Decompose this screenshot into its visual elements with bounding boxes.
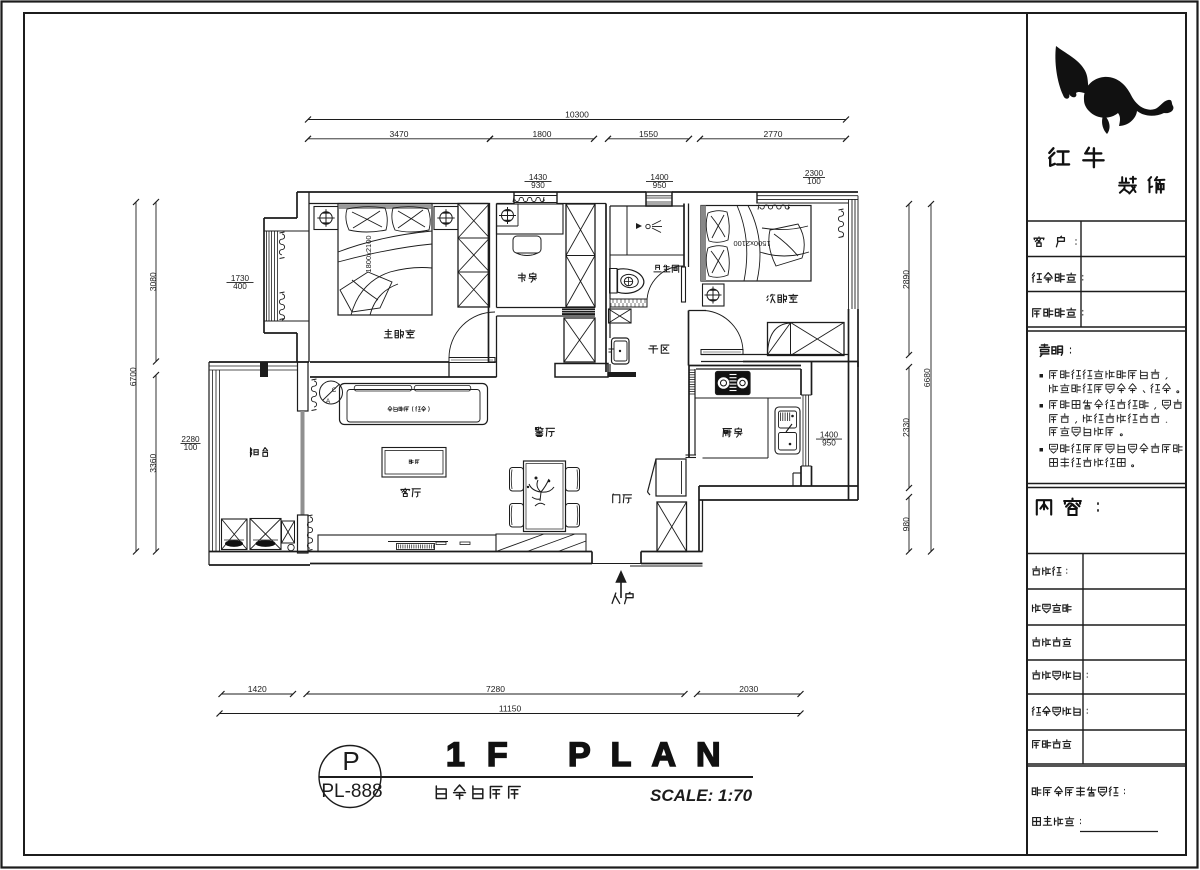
- svg-text:P: P: [342, 746, 359, 776]
- svg-text:950: 950: [653, 181, 667, 190]
- svg-text:C: C: [332, 387, 337, 394]
- svg-text:1800: 1800: [533, 129, 552, 139]
- svg-text:10300: 10300: [565, 110, 589, 120]
- svg-text:930: 930: [531, 181, 545, 190]
- svg-text:2330: 2330: [901, 418, 911, 437]
- svg-text:1550: 1550: [639, 129, 658, 139]
- svg-text:1F: 1F: [446, 736, 530, 774]
- svg-text:1500x2100: 1500x2100: [733, 239, 770, 248]
- svg-text:6700: 6700: [128, 367, 138, 386]
- svg-text:100: 100: [807, 177, 821, 186]
- svg-text:950: 950: [822, 439, 836, 448]
- svg-text:SCALE: 1:70: SCALE: 1:70: [650, 786, 753, 805]
- svg-text:1420: 1420: [248, 684, 267, 694]
- svg-text:PL-888: PL-888: [321, 781, 382, 802]
- svg-text:100: 100: [184, 443, 198, 452]
- svg-text:3080: 3080: [148, 272, 158, 291]
- svg-text:3360: 3360: [148, 454, 158, 473]
- svg-text:2030: 2030: [739, 684, 758, 694]
- svg-text:2890: 2890: [901, 270, 911, 289]
- svg-text:A: A: [326, 398, 331, 405]
- svg-text:400: 400: [233, 282, 247, 291]
- svg-text:11150: 11150: [499, 704, 522, 714]
- svg-text:980: 980: [901, 517, 911, 531]
- svg-text:1800x2100: 1800x2100: [364, 235, 373, 272]
- svg-text:PLAN: PLAN: [568, 736, 741, 774]
- svg-text:2770: 2770: [764, 129, 783, 139]
- svg-text:7280: 7280: [486, 684, 505, 694]
- svg-text:6680: 6680: [922, 368, 932, 387]
- svg-text:3470: 3470: [390, 129, 409, 139]
